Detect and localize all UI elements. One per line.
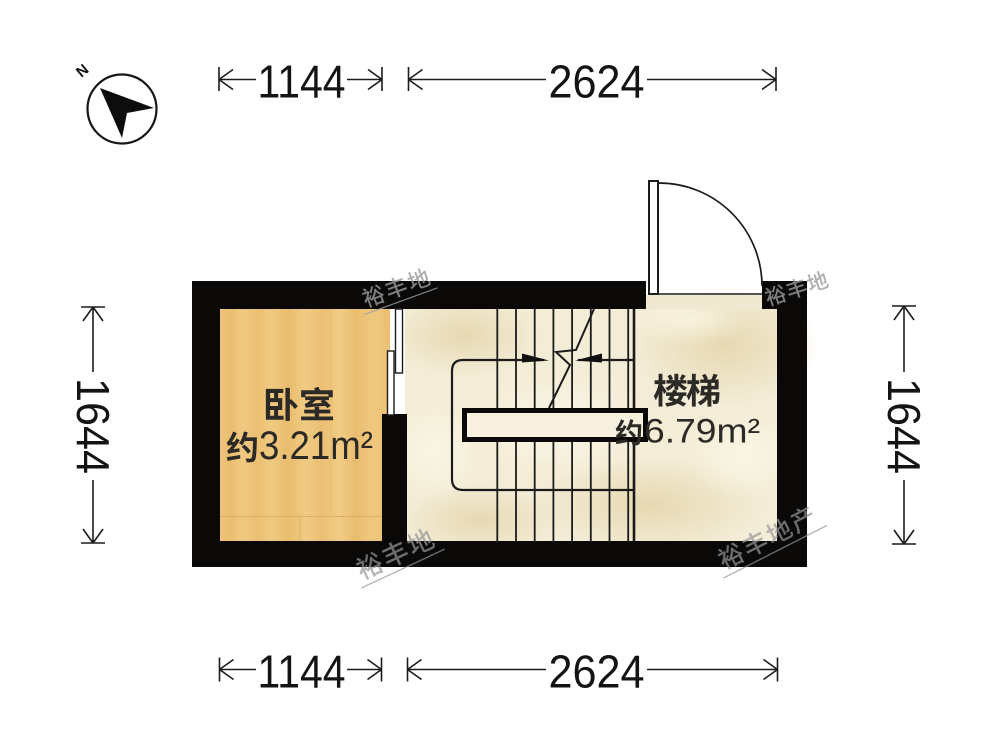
svg-text:6.79m²: 6.79m²: [644, 413, 760, 451]
svg-text:1144: 1144: [258, 646, 346, 698]
svg-text:1644: 1644: [878, 378, 930, 474]
svg-text:2624: 2624: [549, 56, 645, 108]
svg-text:3.21m²: 3.21m²: [259, 424, 373, 468]
svg-text:2624: 2624: [549, 646, 645, 698]
svg-text:N: N: [73, 61, 92, 81]
svg-text:1644: 1644: [67, 378, 119, 474]
svg-text:1144: 1144: [258, 56, 346, 108]
